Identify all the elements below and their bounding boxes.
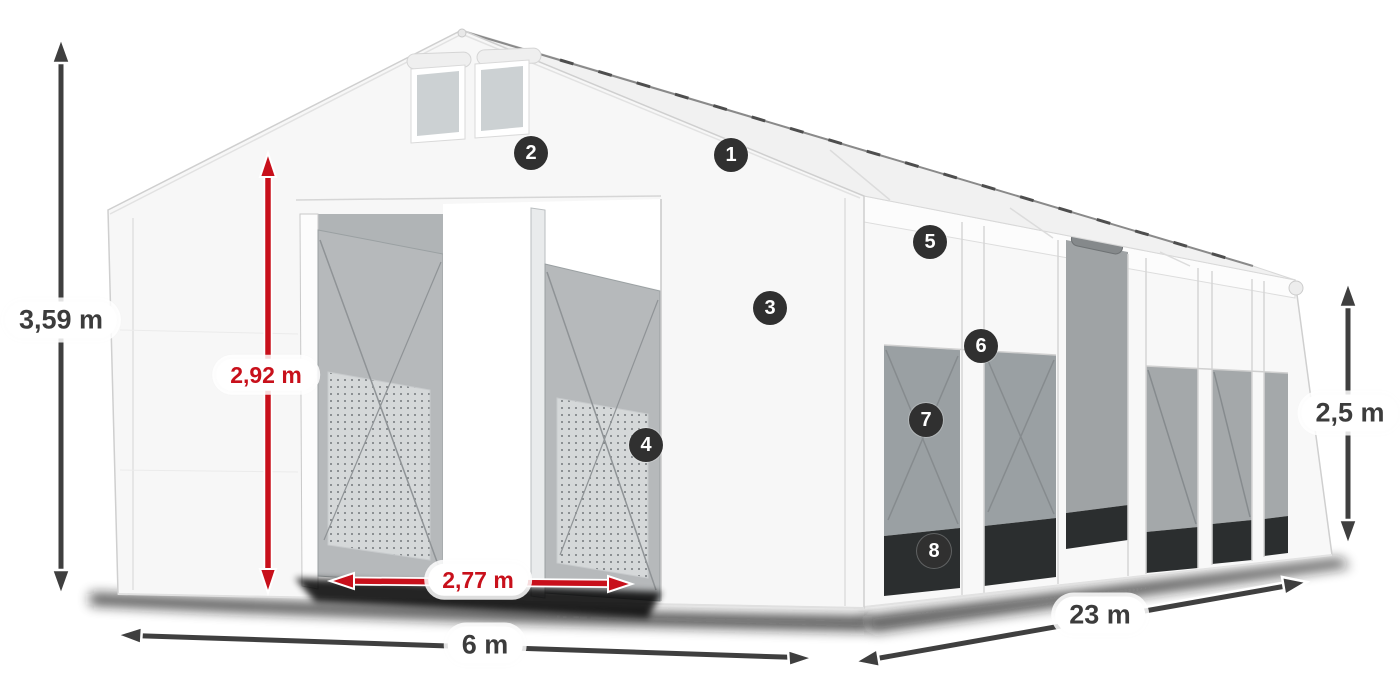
callout-badge-3: 3 — [753, 291, 787, 325]
callout-badge-1: 1 — [714, 138, 748, 172]
callout-badge-8: 8 — [917, 534, 951, 568]
tent-illustration — [0, 0, 1400, 700]
callout-badge-2: 2 — [514, 136, 548, 170]
dimension-label-length: 23 m — [1055, 596, 1145, 633]
callout-badge-5: 5 — [913, 225, 947, 259]
callout-badge-7: 7 — [909, 403, 943, 437]
dimension-label-door-height: 2,92 m — [216, 359, 316, 391]
front-doorways — [295, 199, 662, 618]
dimension-label-front-width: 6 m — [448, 626, 523, 663]
tent-dimension-diagram: 3,59 m 2,92 m 2,77 m 6 m 23 m 2,5 m 1 2 … — [0, 0, 1400, 700]
dimension-label-side-height: 2,5 m — [1301, 394, 1398, 431]
dimension-label-door-width: 2,77 m — [428, 564, 528, 596]
callout-badge-6: 6 — [964, 329, 998, 363]
dimension-label-total-height: 3,59 m — [5, 301, 117, 338]
callout-badge-4: 4 — [629, 428, 663, 462]
